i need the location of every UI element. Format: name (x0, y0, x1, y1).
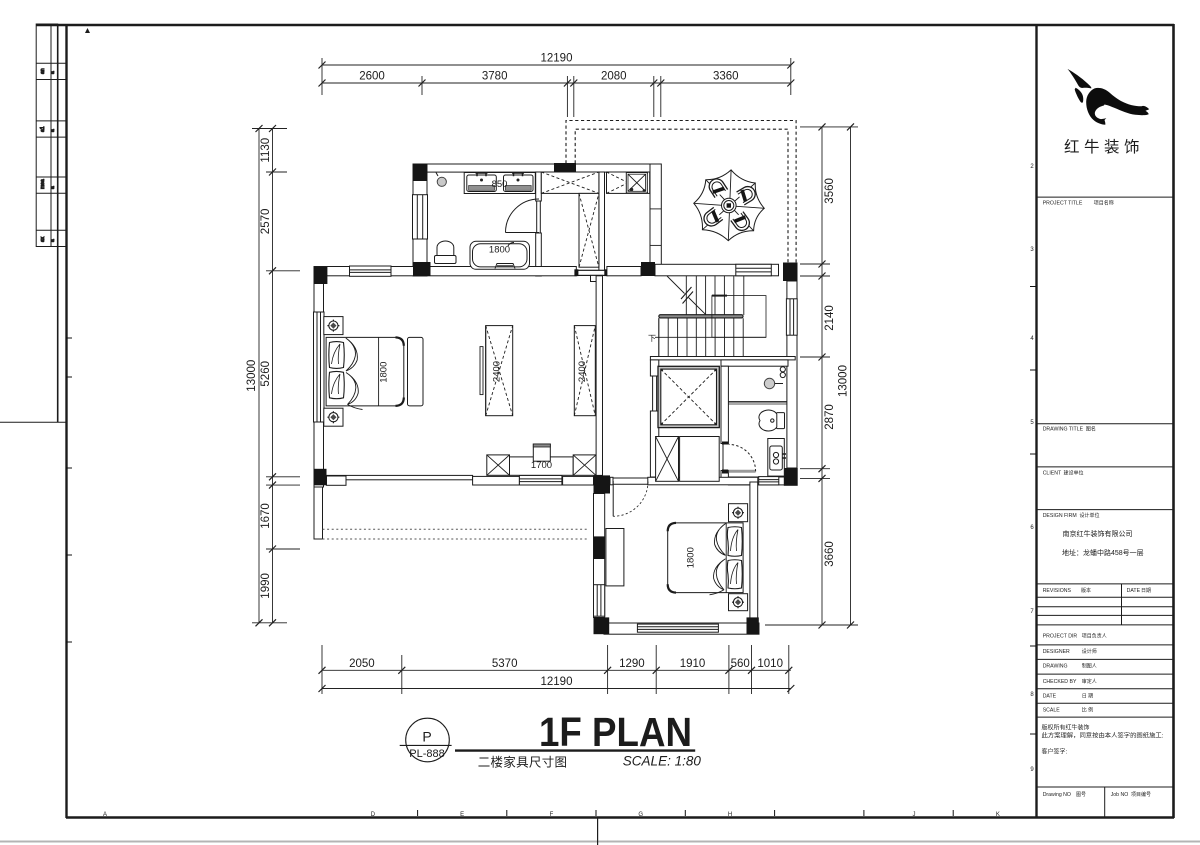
svg-text:1670: 1670 (260, 503, 272, 529)
svg-text:A: A (103, 812, 107, 818)
svg-text:K: K (996, 812, 1000, 818)
svg-text:J: J (913, 812, 916, 818)
svg-text:2: 2 (1030, 164, 1034, 170)
svg-text:850: 850 (492, 179, 508, 190)
svg-text:4: 4 (1030, 336, 1034, 342)
svg-text:5260: 5260 (260, 361, 272, 387)
svg-text:建设单位: 建设单位 (1064, 470, 1084, 477)
svg-text:9: 9 (1030, 767, 1034, 773)
svg-text:地址：龙蟠中路458号一层: 地址：龙蟠中路458号一层 (1062, 548, 1144, 557)
svg-text:D: D (371, 812, 376, 818)
svg-text:7: 7 (1030, 609, 1034, 615)
svg-text:1800: 1800 (686, 547, 697, 568)
svg-text:1130: 1130 (260, 138, 272, 163)
svg-text:1700: 1700 (531, 460, 552, 471)
svg-text:PROJECT TITLE: PROJECT TITLE (1043, 200, 1083, 206)
svg-text:Drawing NO: Drawing NO (1043, 792, 1071, 798)
svg-text:SCALE: 1:80: SCALE: 1:80 (623, 754, 702, 769)
svg-text:日 期: 日 期 (1082, 693, 1093, 699)
svg-text:2050: 2050 (349, 658, 375, 670)
svg-text:12190: 12190 (541, 53, 573, 65)
svg-text:二楼家具尺寸图: 二楼家具尺寸图 (478, 755, 568, 770)
svg-text:F: F (550, 812, 554, 818)
svg-text:DESIGN FIRM: DESIGN FIRM (1043, 513, 1077, 519)
svg-text:6: 6 (1030, 525, 1034, 531)
svg-text:560: 560 (731, 658, 750, 670)
svg-text:2400: 2400 (492, 361, 503, 382)
svg-text:5: 5 (1030, 420, 1034, 426)
svg-text:2140: 2140 (824, 305, 836, 331)
svg-text:CHECKED BY: CHECKED BY (1043, 679, 1077, 685)
svg-text:ax: ax (40, 236, 46, 242)
svg-text:P: P (422, 729, 431, 745)
svg-text:13000: 13000 (838, 365, 850, 397)
svg-text:客户签字:: 客户签字: (1042, 747, 1068, 755)
svg-text:G: G (638, 812, 643, 818)
svg-text:设计师: 设计师 (1082, 648, 1097, 655)
svg-text:1800: 1800 (378, 362, 389, 383)
svg-text:设计单位: 设计单位 (1080, 512, 1100, 519)
svg-text:PL-888: PL-888 (409, 748, 444, 760)
svg-text:下: 下 (648, 334, 656, 343)
svg-text:1910: 1910 (680, 658, 706, 670)
svg-text:制图人: 制图人 (1082, 663, 1097, 670)
svg-text:a: a (50, 186, 56, 189)
svg-text:南京红牛装饰有限公司: 南京红牛装饰有限公司 (1063, 529, 1133, 538)
svg-text:DATE: DATE (1127, 588, 1141, 594)
svg-text:8: 8 (1030, 692, 1034, 698)
svg-text:版本: 版本 (1081, 587, 1091, 594)
svg-text:2570: 2570 (260, 209, 272, 235)
svg-text:图名: 图名 (1086, 426, 1096, 433)
svg-text:REVISIONS: REVISIONS (1043, 588, 1072, 594)
svg-text:DATE: DATE (1043, 693, 1057, 699)
svg-text:审定人: 审定人 (1082, 678, 1097, 685)
svg-text:SCALE: SCALE (1043, 708, 1061, 714)
svg-text:12190: 12190 (541, 676, 573, 688)
svg-text:图号: 图号 (1076, 792, 1086, 798)
svg-text:2400: 2400 (577, 361, 588, 382)
svg-text:2600: 2600 (359, 71, 385, 83)
svg-text:项目编号: 项目编号 (1131, 791, 1151, 798)
svg-text:1010: 1010 (757, 658, 783, 670)
svg-text:2080: 2080 (601, 71, 627, 83)
svg-text:PROJECT DIR: PROJECT DIR (1043, 634, 1078, 640)
svg-text:DRAWING: DRAWING (1043, 664, 1068, 670)
svg-text:1800: 1800 (489, 244, 510, 255)
svg-text:a: a (50, 129, 56, 132)
svg-text:DRAWING TITLE: DRAWING TITLE (1043, 427, 1084, 433)
svg-text:an: an (40, 68, 46, 74)
svg-text:3780: 3780 (482, 71, 508, 83)
svg-text:a: a (50, 239, 56, 242)
svg-text:项目名称: 项目名称 (1094, 199, 1114, 206)
svg-text:3560: 3560 (824, 178, 836, 204)
svg-text:DESIGNER: DESIGNER (1043, 649, 1070, 655)
svg-text:E: E (460, 812, 464, 818)
svg-text:1290: 1290 (619, 658, 645, 670)
svg-text:H: H (728, 812, 732, 818)
svg-text:a: a (50, 71, 56, 74)
svg-text:3: 3 (1030, 247, 1034, 253)
svg-text:日期: 日期 (1141, 588, 1151, 594)
svg-text:13000: 13000 (246, 360, 258, 392)
svg-text:1F PLAN: 1F PLAN (539, 709, 692, 755)
svg-text:此方案理解，同意按由本人签字的图纸施工:: 此方案理解，同意按由本人签字的图纸施工: (1042, 731, 1164, 739)
svg-text:Job NO: Job NO (1111, 792, 1129, 798)
svg-text:版权所有红牛装饰: 版权所有红牛装饰 (1042, 723, 1090, 731)
svg-text:3660: 3660 (824, 541, 836, 567)
svg-text:mea: mea (40, 179, 46, 189)
svg-text:3360: 3360 (713, 71, 739, 83)
svg-text:2870: 2870 (824, 404, 836, 430)
svg-text:红牛装饰: 红牛装饰 (1064, 138, 1144, 156)
svg-text:项目负责人: 项目负责人 (1082, 633, 1107, 640)
svg-text:1990: 1990 (260, 573, 272, 599)
svg-text:CLIENT: CLIENT (1043, 471, 1062, 477)
svg-text:5370: 5370 (492, 658, 518, 670)
svg-text:比 例: 比 例 (1082, 707, 1093, 714)
svg-text:a1: a1 (40, 126, 46, 132)
